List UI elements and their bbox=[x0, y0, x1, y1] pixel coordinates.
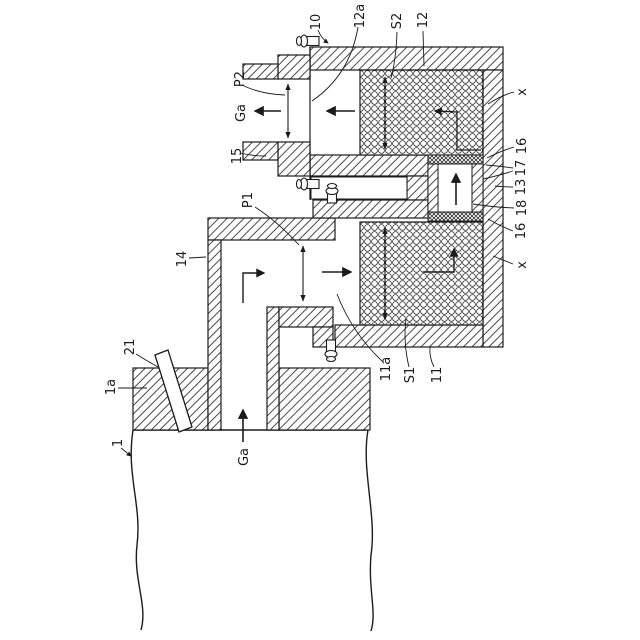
partition-upper-flange bbox=[310, 155, 428, 176]
bolt-mid-right bbox=[326, 184, 338, 204]
figure-canvas: 10 12a S2 12 x 16 17 13 18 16 x 11a S1 1… bbox=[0, 0, 640, 640]
label-10: 10 bbox=[309, 14, 324, 31]
label-11a: 11a bbox=[379, 357, 394, 382]
bolt-top bbox=[297, 35, 320, 47]
label-12: 12 bbox=[416, 12, 431, 29]
leader-1 bbox=[121, 448, 131, 456]
flow-arrow-duct-bend bbox=[243, 273, 264, 303]
label-p2: P2 bbox=[233, 71, 248, 87]
bolt-mid-left bbox=[297, 178, 320, 190]
label-ga-bottom: Ga bbox=[237, 448, 252, 466]
label-15: 15 bbox=[230, 148, 245, 165]
label-13: 13 bbox=[514, 179, 529, 196]
honeycomb-s1 bbox=[360, 222, 483, 325]
label-p1: P1 bbox=[241, 192, 256, 208]
label-1: 1 bbox=[111, 439, 126, 447]
label-11: 11 bbox=[430, 367, 445, 384]
label-ga-left: Ga bbox=[234, 104, 249, 122]
mesh-strip-bottom bbox=[428, 212, 483, 221]
label-12a: 12a bbox=[353, 4, 368, 29]
leader-14 bbox=[189, 257, 206, 258]
label-1a: 1a bbox=[104, 379, 119, 395]
label-s2: S2 bbox=[390, 13, 405, 30]
label-x-top: x bbox=[515, 88, 530, 96]
leader-p2 bbox=[242, 85, 285, 95]
label-14: 14 bbox=[175, 251, 190, 268]
flange-slot bbox=[311, 177, 407, 199]
bypass-channel-18 bbox=[438, 164, 472, 212]
leader-11 bbox=[430, 347, 434, 367]
casing-bottom-band-11 bbox=[335, 325, 483, 347]
flange-15 bbox=[243, 55, 310, 176]
casing-right-wall-13 bbox=[483, 70, 503, 347]
honeycomb-s2 bbox=[360, 70, 483, 155]
partition-mid bbox=[407, 176, 428, 200]
mesh-strip-top bbox=[428, 155, 483, 164]
label-16-top: 16 bbox=[515, 138, 530, 155]
label-18: 18 bbox=[515, 200, 530, 217]
label-17: 17 bbox=[514, 160, 529, 177]
wall-1 bbox=[131, 430, 373, 631]
bypass-left-wall bbox=[428, 164, 438, 212]
label-s1: S1 bbox=[403, 367, 418, 384]
patent-figure: 10 12a S2 12 x 16 17 13 18 16 x 11a S1 1… bbox=[0, 0, 640, 640]
label-16-bottom: 16 bbox=[514, 223, 529, 240]
bolt-bottom bbox=[325, 340, 337, 362]
casing-top-band bbox=[310, 47, 503, 70]
label-21: 21 bbox=[123, 339, 138, 356]
label-x-bottom: x bbox=[515, 261, 530, 269]
